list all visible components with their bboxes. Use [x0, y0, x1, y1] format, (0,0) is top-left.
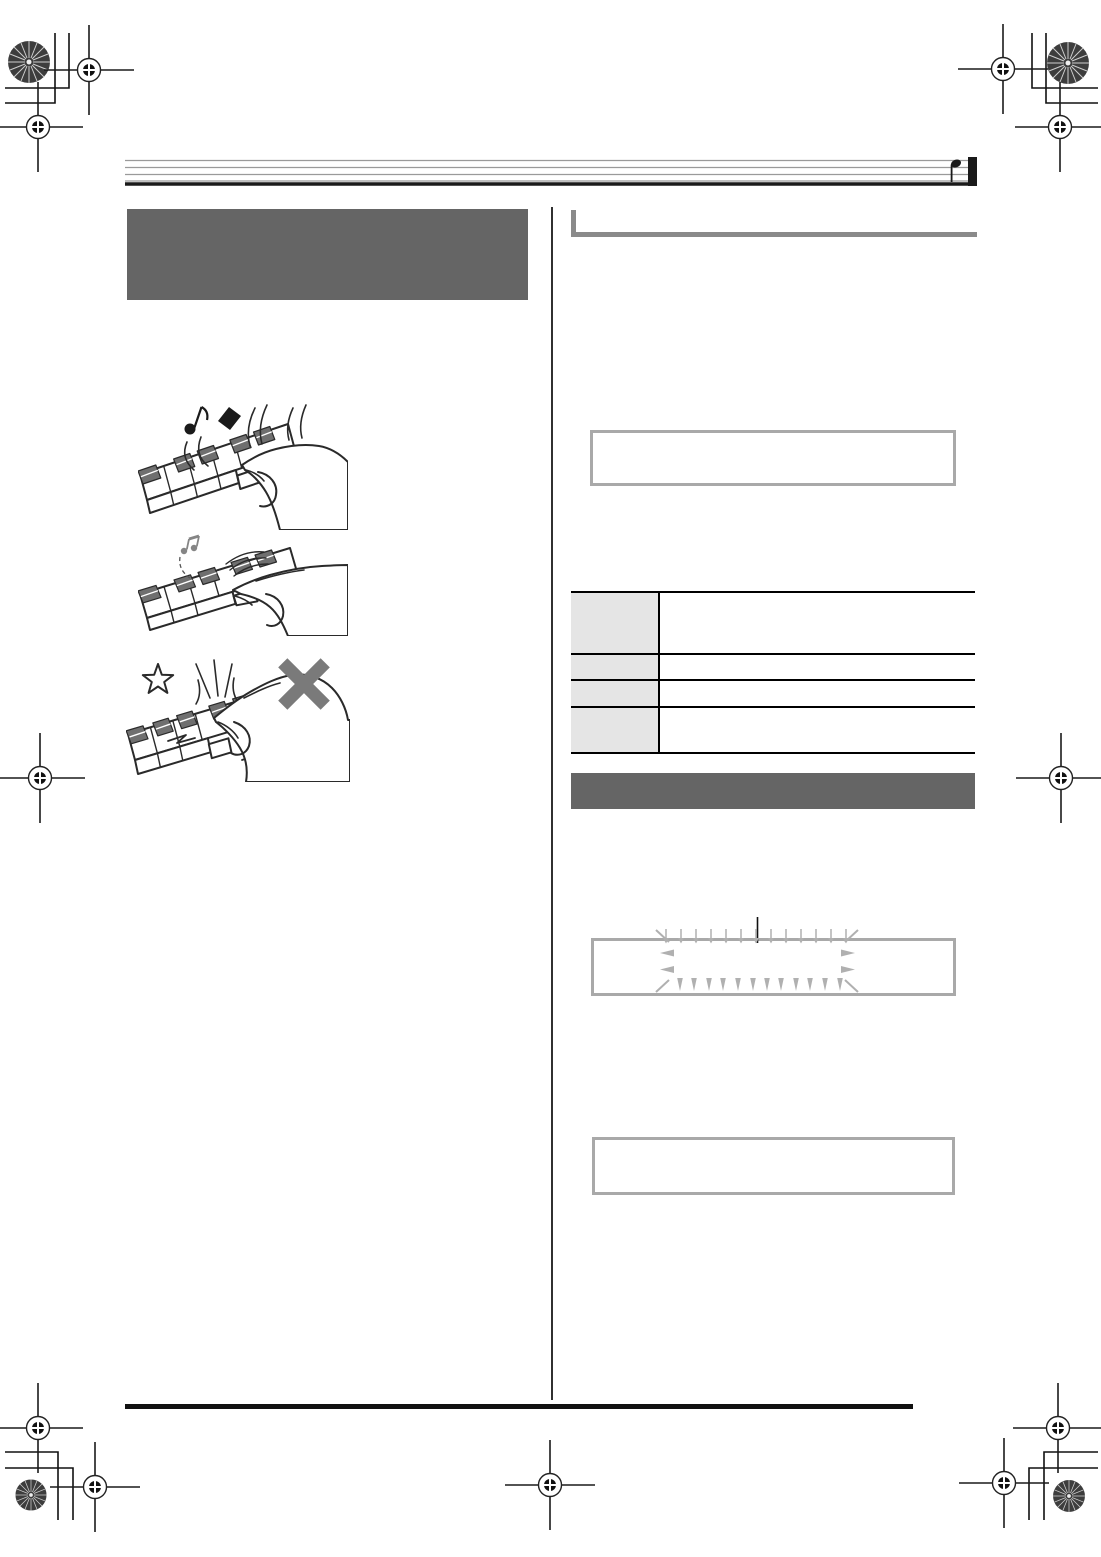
- note-box-2: [592, 1137, 955, 1195]
- registration-target-icon: [1013, 1383, 1101, 1473]
- header-staff: [125, 161, 977, 182]
- illustration-gentle-keypress: [138, 534, 348, 636]
- section-heading-bar: [571, 773, 975, 809]
- table-header-cell: [571, 593, 660, 653]
- display-indicator-arrows: [580, 908, 965, 1003]
- table-body-cell: [660, 708, 975, 752]
- table-body-cell: [660, 681, 975, 706]
- chapter-title-block: [127, 209, 528, 300]
- pinwheel-icon: [1053, 1480, 1085, 1512]
- registration-target-icon: [958, 24, 1048, 114]
- table-header-cell: [571, 681, 660, 706]
- registration-target-icon: [1016, 733, 1101, 823]
- pinwheel-icon: [1047, 42, 1089, 84]
- table-row: [571, 655, 975, 681]
- section-heading-rule-horizontal: [571, 232, 977, 237]
- arrows-bottom: [677, 978, 843, 991]
- table-row: [571, 681, 975, 708]
- table-body-cell: [660, 655, 975, 679]
- soft-notes-icon: [180, 536, 199, 578]
- spec-table: [571, 591, 975, 754]
- registration-target-icon: [0, 733, 85, 823]
- registration-target-icon: [0, 1383, 83, 1473]
- arrows-sides: [660, 950, 855, 974]
- pinwheel-icon: [15, 1479, 46, 1510]
- registration-target-icon: [505, 1440, 595, 1530]
- registration-target-icon: [44, 25, 134, 115]
- registration-target-icon: [1015, 82, 1101, 172]
- footer-rule: [125, 1404, 913, 1409]
- registration-target-icon: [0, 82, 83, 172]
- quarter-note-icon: [950, 158, 962, 182]
- manual-page: [0, 0, 1101, 1557]
- note-box-1: [590, 430, 956, 486]
- table-body-cell: [660, 593, 975, 653]
- star-burst-icon: [143, 664, 173, 693]
- illustration-excessive-force-prohibited: [126, 652, 350, 782]
- final-barline: [968, 157, 977, 186]
- registration-target-icon: [50, 1442, 140, 1532]
- pinwheel-icon: [8, 41, 50, 83]
- loud-notes-icon: [185, 407, 242, 435]
- table-header-cell: [571, 708, 660, 752]
- registration-target-icon: [959, 1438, 1049, 1528]
- illustration-strong-keypress: [138, 402, 348, 530]
- table-row: [571, 593, 975, 655]
- table-row: [571, 708, 975, 752]
- table-header-cell: [571, 655, 660, 679]
- arrows-top: [663, 929, 849, 944]
